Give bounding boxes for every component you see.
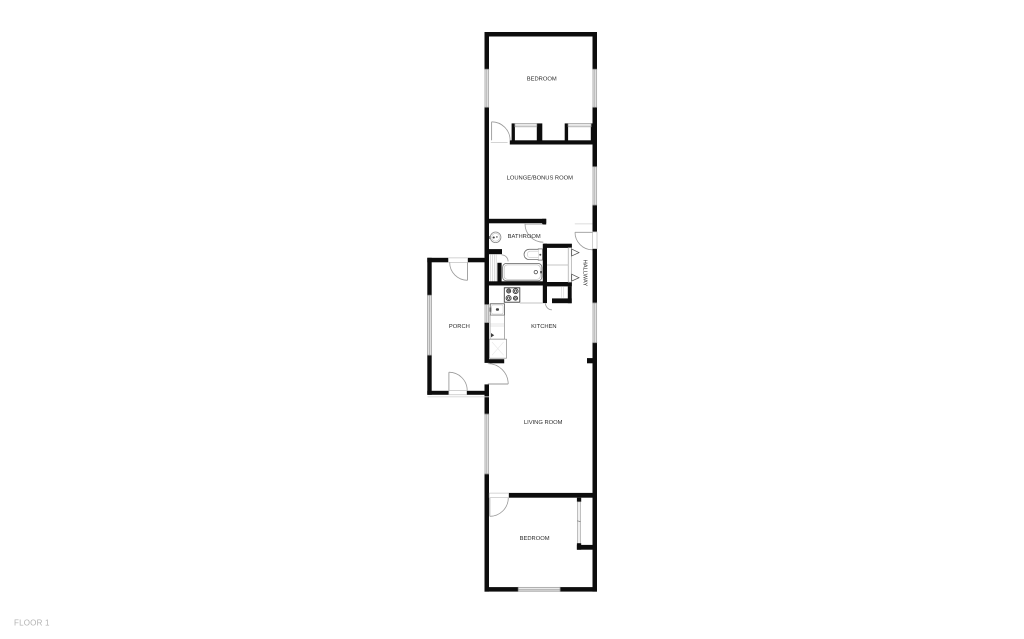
svg-text:KITCHEN: KITCHEN — [531, 323, 556, 330]
svg-text:BATHROOM: BATHROOM — [508, 233, 541, 240]
svg-text:LIVING ROOM: LIVING ROOM — [524, 419, 563, 426]
svg-text:PORCH: PORCH — [449, 323, 470, 330]
svg-text:LOUNGE/BONUS ROOM: LOUNGE/BONUS ROOM — [507, 175, 574, 182]
svg-text:HALLWAY: HALLWAY — [582, 260, 588, 287]
svg-text:BEDROOM: BEDROOM — [527, 76, 557, 83]
svg-text:BEDROOM: BEDROOM — [520, 535, 550, 542]
svg-text:FLOOR 1: FLOOR 1 — [14, 619, 50, 628]
